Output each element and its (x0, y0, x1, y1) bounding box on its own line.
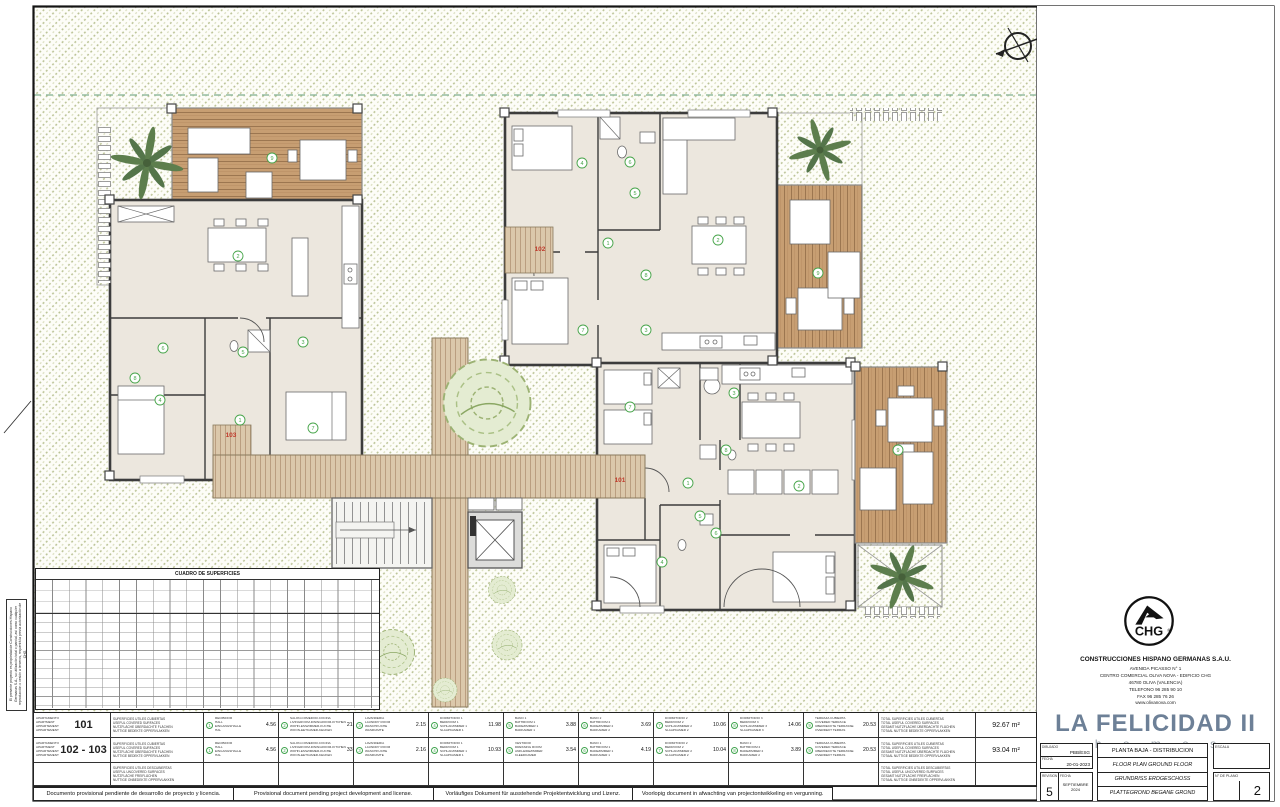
unit-number-label: 101 (615, 477, 626, 484)
room-marker: 4 (657, 557, 667, 567)
revision-date-value: SEPTIEMBRE 2024 (1059, 782, 1092, 792)
room-marker: 2 (794, 481, 804, 491)
legend-cell: APARTAMENTOAPARTMENTAPPARTEMENTAPPARTEME… (34, 713, 111, 738)
legend-cell (354, 763, 429, 786)
revision-label: REVISION (1042, 774, 1057, 778)
legend-cell (729, 763, 804, 786)
drawn-date-box: DIBUJADO PBB/ESG FECHA 20-01-2023 (1040, 743, 1093, 769)
room-marker: 6 (711, 528, 721, 538)
pergola-slats (862, 607, 940, 618)
legend-cell: TOTAL SUPERFICIES UTILES DESCUBIERTASTOT… (879, 763, 976, 786)
title-en: FLOOR PLAN GROUND FLOOR (1098, 758, 1207, 772)
room-marker: 5 (630, 188, 640, 198)
legend-cell: 1RECIBIDORHALLEINGANGSHALLEHAL4.56 (204, 738, 279, 763)
drawing-titles-box: PLANTA BAJA - DISTRIBUCION FLOOR PLAN GR… (1097, 743, 1208, 801)
svg-text:8: 8 (724, 448, 727, 454)
legend-cell: 1RECIBIDORHALLEINGANGSHALLEHAL4.56 (204, 713, 279, 738)
svg-text:1: 1 (606, 241, 609, 247)
legend-cell: 4DORMITORIO 1BEDROOM 1SCHLAFZIMMER 1SLAA… (429, 738, 504, 763)
legend-cell: 7DORMITORIO 2BEDROOM 2SCHLAFZIMMER 2SLAA… (654, 713, 729, 738)
title-nl: PLATTEGROND BEGANE GROND (1098, 787, 1207, 800)
svg-text:7: 7 (581, 328, 584, 334)
svg-text:5: 5 (241, 350, 244, 356)
svg-text:9: 9 (896, 448, 899, 454)
room-marker: 4 (155, 395, 165, 405)
legend-cell: 6BAÑO 2BATHROOM 2BADEZIMMER 2BADKAMER 23… (579, 713, 654, 738)
legend-strip: APARTAMENTOAPARTMENTAPPARTEMENTAPPARTEME… (33, 712, 1037, 787)
room-marker: 9 (267, 153, 277, 163)
legend-cell (504, 763, 579, 786)
legend-cell: 7DORMITORIO 2BEDROOM 2SCHLAFZIMMER 2SLAA… (654, 738, 729, 763)
room-marker: 3 (641, 325, 651, 335)
legend-cell: 6BAÑO 1BATHROOM 1BADEZIMMER 1BADKAMER 14… (579, 738, 654, 763)
copyright-note: El presente proyecto es propiedad de Con… (6, 599, 27, 711)
svg-text:2: 2 (797, 484, 800, 490)
drawn-value: PBB/ESG (1070, 750, 1090, 755)
room-marker: 9 (813, 268, 823, 278)
pergola-slats (850, 108, 942, 121)
svg-text:6: 6 (714, 531, 717, 537)
legend-cell: 8BAÑO 2BATHROOM 2BADEZIMMER 2BADKAMER 23… (729, 738, 804, 763)
legend-cell: 5VESTIDORDRESSING ROOMANKLEIDEZIMMERKLEE… (504, 738, 579, 763)
legend-cell: 9TERRAZA CUBIERTACOVERED TERRACEÜBERDECK… (804, 738, 879, 763)
svg-text:3: 3 (301, 340, 304, 346)
room-marker: 6 (158, 343, 168, 353)
svg-text:7: 7 (311, 426, 314, 432)
legend-cell: SUPERFICIES UTILES DESCUBIERTASUSEFUL UN… (111, 763, 204, 786)
room-marker: 4 (577, 158, 587, 168)
legend-cell: 92.67 m² (976, 713, 1036, 738)
svg-text:3: 3 (732, 391, 735, 397)
disclaimer-es: Documento provisional pendiente de desar… (34, 788, 234, 800)
plan-number-label: N° DE PLANO (1215, 774, 1238, 778)
title-es: PLANTA BAJA - DISTRIBUCION (1098, 744, 1207, 758)
unit-number-label: 102 (535, 246, 546, 253)
room-marker: 5 (238, 347, 248, 357)
plan-number-value: 2 (1254, 783, 1261, 798)
revision-box: REVISION 5 FECHA SEPTIEMBRE 2024 (1040, 772, 1093, 801)
legend-cell (976, 763, 1036, 786)
room-marker: 7 (578, 325, 588, 335)
room-marker: 6 (625, 157, 635, 167)
leader-line (4, 401, 31, 433)
surface-table-rows (36, 614, 379, 708)
title-block: CHG ® CONSTRUCCIONES HISPANO GERMANAS S.… (1037, 6, 1274, 801)
disclaimer-bar: Documento provisional pendiente de desar… (33, 787, 833, 801)
room-marker: 3 (298, 337, 308, 347)
room-marker: 7 (308, 423, 318, 433)
legend-cell: 9TERRAZA CUBIERTACOVERED TERRACEÜBERDECK… (804, 713, 879, 738)
svg-text:9: 9 (270, 156, 273, 162)
title-de: GRUNDRISS ERDGESCHOSS (1098, 773, 1207, 787)
svg-text:4: 4 (580, 161, 583, 167)
svg-text:2: 2 (716, 238, 719, 244)
legend-cell (34, 763, 111, 786)
svg-text:4: 4 (660, 560, 663, 566)
svg-text:6: 6 (161, 346, 164, 352)
legend-cell (429, 763, 504, 786)
legend-cell: 93.04 m² (976, 738, 1036, 763)
legend-cell: 2SALON-COMEDOR-COCINALIVINGROOM-DININGRO… (279, 738, 354, 763)
drawn-label: DIBUJADO (1042, 745, 1058, 749)
svg-text:1: 1 (686, 481, 689, 487)
legend-cell: 4DORMITORIO 1BEDROOM 1SCHLAFZIMMER 1SLAA… (429, 713, 504, 738)
disclaimer-de: Vorläufiges Dokument für ausstehende Pro… (434, 788, 634, 800)
legend-cell (579, 763, 654, 786)
room-marker: 1 (603, 238, 613, 248)
surface-table-title: CUADRO DE SUPERFICIES (36, 569, 379, 580)
svg-text:8: 8 (133, 376, 136, 382)
svg-text:1: 1 (238, 418, 241, 424)
room-marker: 8 (721, 445, 731, 455)
room-marker: 7 (625, 402, 635, 412)
room-marker: 5 (695, 511, 705, 521)
chg-logo: CHG ® (1119, 590, 1179, 652)
entry-deck (505, 227, 553, 273)
scale-box: ESCALA (1213, 743, 1270, 769)
revision-date-label: FECHA (1060, 774, 1071, 778)
date-label: FECHA (1042, 757, 1053, 761)
legend-cell: SUPERFICIES UTILES CUBIERTASUSEFUL COVER… (111, 738, 204, 763)
legend-cell (204, 763, 279, 786)
plan-number-box: N° DE PLANO 2 (1213, 772, 1270, 801)
svg-text:2: 2 (236, 254, 239, 260)
room-marker: 8 (641, 270, 651, 280)
surface-areas-table: CUADRO DE SUPERFICIES (35, 568, 380, 710)
unit-number-label: 103 (226, 432, 237, 439)
legend-cell (279, 763, 354, 786)
room-marker: 1 (683, 478, 693, 488)
louver-screen (97, 127, 111, 283)
legend-cell: TOTAL SUPERFICIES UTILES CUBIERTASTOTAL … (879, 738, 976, 763)
svg-text:7: 7 (628, 405, 631, 411)
staircase (332, 498, 432, 568)
legend-cell (654, 763, 729, 786)
svg-text:3: 3 (644, 328, 647, 334)
company-name: CONSTRUCCIONES HISPANO GERMANAS S.A.U. (1037, 656, 1274, 663)
svg-text:8: 8 (644, 273, 647, 279)
legend-cell: 2SALON-COMEDOR-COCINALIVINGROOM-DININGRO… (279, 713, 354, 738)
legend-cell (804, 763, 879, 786)
scale-label: ESCALA (1215, 745, 1229, 749)
company-address: AVENIDA PICASSO N° 1CENTRO COMERCIAL OLI… (1037, 666, 1274, 707)
drawing-sheet: 926531478465128739738126549 103102101 CU… (0, 0, 1280, 807)
legend-cell: TOTAL SUPERFICIES UTILES CUBIERTASTOTAL … (879, 713, 976, 738)
legend-cell: 5BAÑO 1BATHROOM 1BADEZIMMER 1BADKAMER 13… (504, 713, 579, 738)
svg-text:5: 5 (698, 514, 701, 520)
svg-text:CHG: CHG (1135, 624, 1163, 639)
legend-cell: 3LAVANDERIALAUNDRY ROOMWASCHKÜCHEWASRUIM… (354, 713, 429, 738)
surface-table-header (36, 580, 379, 614)
date-value: 20-01-2023 (1067, 762, 1091, 767)
svg-text:9: 9 (816, 271, 819, 277)
room-marker: 8 (130, 373, 140, 383)
legend-cell: APARTAMENTOAPARTMENTAPPARTEMENTAPPARTEME… (34, 738, 111, 763)
svg-text:4: 4 (158, 398, 161, 404)
room-marker: 9 (893, 445, 903, 455)
revision-value: 5 (1041, 785, 1058, 799)
legend-cell: SUPERFICIES UTILES CUBIERTASUSEFUL COVER… (111, 713, 204, 738)
svg-text:6: 6 (628, 160, 631, 166)
svg-text:5: 5 (633, 191, 636, 197)
room-marker: 1 (235, 415, 245, 425)
brand-logo: LA FELICIDAD II (1037, 710, 1274, 738)
room-marker: 3 (729, 388, 739, 398)
disclaimer-en: Provisional document pending project dev… (234, 788, 434, 800)
legend-cell: 3LAVANDERIALAUNDRY ROOMWASCHKÜCHEWASRUIM… (354, 738, 429, 763)
legend-cell: 8DORMITORIO 3BEDROOM 3SCHLAFZIMMER 3SLAA… (729, 713, 804, 738)
room-marker: 2 (713, 235, 723, 245)
disclaimer-nl: Voorlopig document in afwachting van pro… (633, 788, 832, 800)
room-marker: 2 (233, 251, 243, 261)
